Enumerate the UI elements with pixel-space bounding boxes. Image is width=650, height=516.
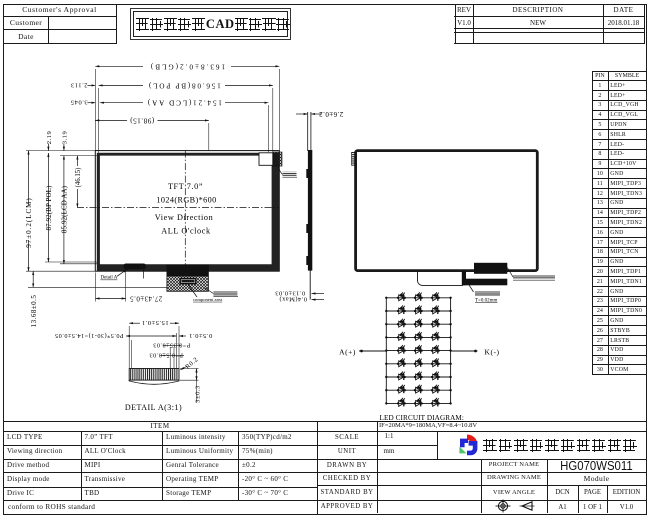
svg-text:2.19: 2.19 <box>46 131 53 145</box>
svg-text:0.5±0.1: 0.5±0.1 <box>189 332 213 339</box>
svg-text:component area: component area <box>193 297 222 302</box>
svg-text:(98.15): (98.15) <box>130 116 155 124</box>
svg-text:163.8±0.2(GLB): 163.8±0.2(GLB) <box>149 62 225 70</box>
svg-text:156.08(BP POL): 156.08(BP POL) <box>147 81 221 89</box>
svg-text:T=0.02mm: T=0.02mm <box>475 299 498 304</box>
svg-text:15.5±0.1: 15.5±0.1 <box>141 319 168 326</box>
svg-text:3.045: 3.045 <box>70 99 88 106</box>
svg-text:0.13±0.03: 0.13±0.03 <box>275 290 305 297</box>
svg-text:2.6±0.2: 2.6±0.2 <box>319 110 344 118</box>
svg-text:3.19: 3.19 <box>61 131 68 145</box>
svg-text:P0.5*(30-1)=14.5±0.05: P0.5*(30-1)=14.5±0.05 <box>55 332 124 339</box>
svg-text:85.92(LCD AA): 85.92(LCD AA) <box>61 185 69 233</box>
svg-text:Detail A: Detail A <box>101 276 118 281</box>
svg-text:TFT 7.0”: TFT 7.0” <box>168 182 203 191</box>
svg-text:154.21(LCD AA): 154.21(LCD AA) <box>146 99 222 107</box>
svg-text:97±0.2(LCM): 97±0.2(LCM) <box>25 197 33 247</box>
svg-text:3±0.3: 3±0.3 <box>194 385 201 403</box>
svg-text:(46.15): (46.15) <box>75 168 82 188</box>
svg-text:2.113: 2.113 <box>70 81 87 88</box>
svg-text:DETAIL A(3:1): DETAIL A(3:1) <box>125 403 182 412</box>
svg-text:0.4(Max): 0.4(Max) <box>279 296 307 303</box>
svg-text:P=0.35±0.03: P=0.35±0.03 <box>153 342 190 349</box>
svg-text:P=0.5±0.03: P=0.5±0.03 <box>149 351 183 358</box>
svg-text:ALL O'clock: ALL O'clock <box>161 227 211 236</box>
svg-text:K(-): K(-) <box>485 347 500 356</box>
svg-text:A(+): A(+) <box>339 347 356 356</box>
svg-text:View Direction: View Direction <box>155 213 214 222</box>
svg-text:LED CIRCUIT DIAGRAM:: LED CIRCUIT DIAGRAM: <box>380 414 465 422</box>
svg-text:87.92(BP POL): 87.92(BP POL) <box>45 185 53 231</box>
svg-text:1024(RGB)*600: 1024(RGB)*600 <box>156 195 216 204</box>
svg-text:13.68±0.5: 13.68±0.5 <box>30 295 38 328</box>
svg-text:27.43±0.5: 27.43±0.5 <box>130 295 163 303</box>
